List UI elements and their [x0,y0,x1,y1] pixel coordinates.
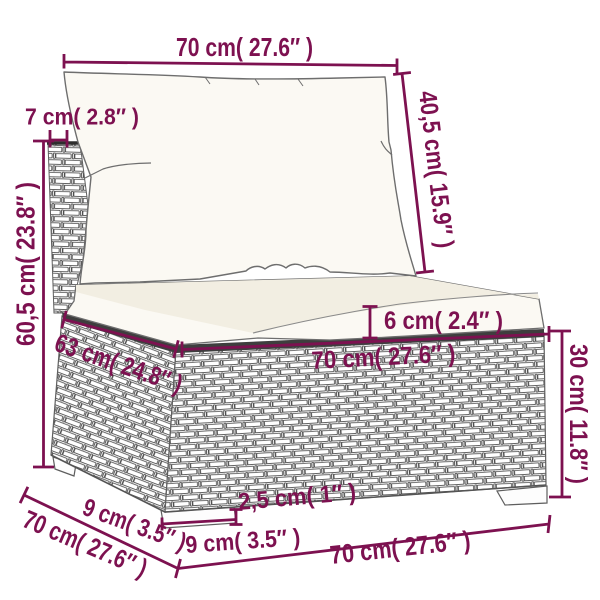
svg-text:30 cm( 11.8″ ): 30 cm( 11.8″ ) [564,344,592,484]
svg-text:6 cm( 2.4″ ): 6 cm( 2.4″ ) [384,307,503,335]
svg-text:70 cm( 27.6″ ): 70 cm( 27.6″ ) [176,32,313,62]
svg-text:7 cm( 2.8″ ): 7 cm( 2.8″ ) [25,104,139,130]
svg-text:60,5 cm( 23.8″ ): 60,5 cm( 23.8″ ) [11,182,41,346]
